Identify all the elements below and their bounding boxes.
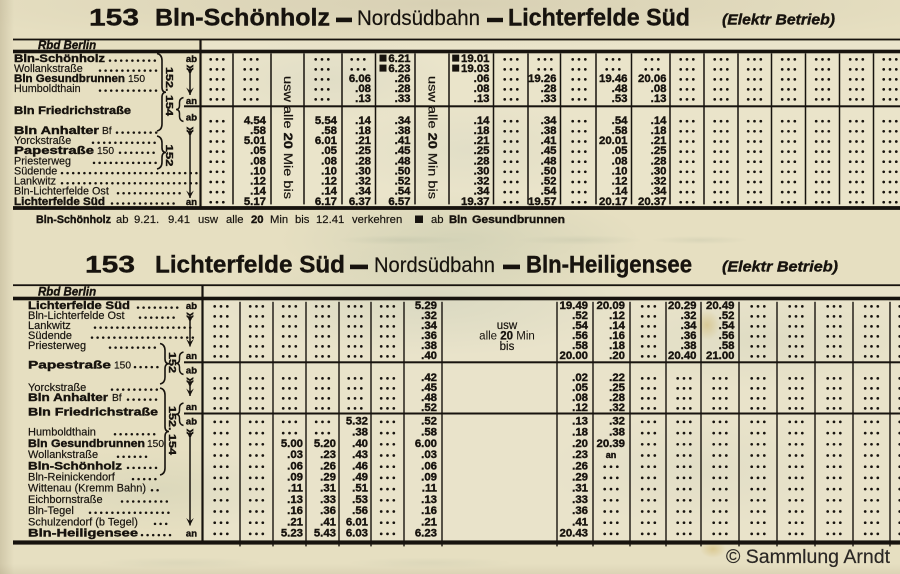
svg-text:.23: .23 <box>572 449 588 461</box>
svg-text:.53: .53 <box>352 494 368 506</box>
svg-text:.16: .16 <box>421 505 437 517</box>
svg-text:6.57: 6.57 <box>388 196 410 208</box>
svg-text:.31: .31 <box>572 483 588 495</box>
svg-text:.38: .38 <box>352 427 368 439</box>
svg-text:5.20: 5.20 <box>314 438 336 450</box>
svg-text:Bln-Reinickendorf: Bln-Reinickendorf <box>28 472 116 484</box>
svg-text:6.03: 6.03 <box>346 528 368 540</box>
svg-text:6.37: 6.37 <box>349 196 371 208</box>
svg-text:5.32: 5.32 <box>346 416 368 428</box>
svg-text:.13: .13 <box>474 93 490 105</box>
svg-text:.51: .51 <box>352 483 368 495</box>
svg-text:.43: .43 <box>352 449 368 461</box>
svg-text:Bln Friedrichstraße: Bln Friedrichstraße <box>14 105 131 117</box>
svg-text:Bln: Bln <box>449 214 467 226</box>
svg-text:.13: .13 <box>421 494 437 506</box>
svg-text:.23: .23 <box>320 449 336 461</box>
svg-text:an: an <box>186 96 197 107</box>
svg-text:Bln-Tegel: Bln-Tegel <box>28 505 74 517</box>
svg-text:.18: .18 <box>572 427 588 439</box>
svg-text:an: an <box>186 402 197 413</box>
svg-text:19.57: 19.57 <box>528 196 557 208</box>
svg-text:an: an <box>186 351 197 362</box>
svg-text:.31: .31 <box>320 483 336 495</box>
svg-text:.32: .32 <box>609 416 625 428</box>
svg-text:5.00: 5.00 <box>281 438 303 450</box>
svg-text:6.00: 6.00 <box>415 438 437 450</box>
svg-text:alle: alle <box>226 214 244 226</box>
svg-text:Priesterweg: Priesterweg <box>28 340 86 352</box>
svg-text:.33: .33 <box>572 494 588 506</box>
svg-text:bis: bis <box>295 214 310 226</box>
svg-text:ab: ab <box>186 113 197 124</box>
svg-text:.49: .49 <box>352 472 368 484</box>
svg-text:.13: .13 <box>572 416 588 428</box>
svg-text:(Elektr Betrieb): (Elektr Betrieb) <box>722 12 835 29</box>
svg-text:Schulzendorf (b Tegel): Schulzendorf (b Tegel) <box>28 516 138 528</box>
svg-text:Nordsüdbahn: Nordsüdbahn <box>357 7 480 30</box>
svg-text:.58: .58 <box>421 427 437 439</box>
svg-text:6.17: 6.17 <box>315 196 337 208</box>
svg-text:150: 150 <box>114 361 131 372</box>
svg-text:.26: .26 <box>572 460 588 472</box>
svg-text:Eichbornstraße: Eichbornstraße <box>28 494 103 506</box>
svg-text:Bln-Schönholz: Bln-Schönholz <box>155 5 330 32</box>
svg-text:bis: bis <box>500 341 515 353</box>
svg-text:6.01: 6.01 <box>346 516 369 528</box>
svg-text:Bln Gesundbrunnen: Bln Gesundbrunnen <box>28 438 145 450</box>
svg-text:usw: usw <box>198 214 219 226</box>
svg-text:.09: .09 <box>287 472 303 484</box>
svg-text:.21: .21 <box>287 516 303 528</box>
svg-text:ab: ab <box>431 214 444 226</box>
svg-text:.29: .29 <box>320 472 336 484</box>
svg-text:.41: .41 <box>572 516 588 528</box>
svg-text:.03: .03 <box>421 449 437 461</box>
svg-text:(Elektr Betrieb): (Elektr Betrieb) <box>722 259 838 276</box>
svg-text:Humboldthain: Humboldthain <box>14 83 81 95</box>
svg-text:.03: .03 <box>287 449 303 461</box>
svg-text:20.43: 20.43 <box>559 528 588 540</box>
svg-text:.41: .41 <box>320 516 336 528</box>
svg-text:.56: .56 <box>352 505 368 517</box>
svg-text:.38: .38 <box>609 427 625 439</box>
svg-text:Wollankstraße: Wollankstraße <box>28 449 98 461</box>
svg-text:usw alle 20 Mie bis: usw alle 20 Mie bis <box>281 76 293 199</box>
svg-text:Papestraße: Papestraße <box>28 360 111 372</box>
svg-text:Bf: Bf <box>102 126 112 137</box>
svg-text:.06: .06 <box>421 460 437 472</box>
svg-text:Gesundbrunnen: Gesundbrunnen <box>472 214 565 226</box>
svg-text:ab: ab <box>186 301 197 312</box>
svg-text:150: 150 <box>128 74 145 85</box>
svg-text:.26: .26 <box>320 460 336 472</box>
svg-text:.13: .13 <box>355 93 371 105</box>
svg-text:ab: ab <box>186 365 197 376</box>
svg-text:Min: Min <box>270 214 288 226</box>
svg-text:6.23: 6.23 <box>415 528 437 540</box>
svg-text:.11: .11 <box>422 483 438 495</box>
svg-text:Lichterfelde Süd: Lichterfelde Süd <box>508 5 690 32</box>
svg-text:Wittenau (Kremm Bahn): Wittenau (Kremm Bahn) <box>28 483 146 495</box>
svg-text:.53: .53 <box>612 93 628 105</box>
svg-text:150: 150 <box>97 146 114 157</box>
svg-text:20.37: 20.37 <box>638 196 667 208</box>
svg-text:.21: .21 <box>421 516 437 528</box>
svg-text:.13: .13 <box>287 494 303 506</box>
svg-text:Lichterfelde Süd: Lichterfelde Süd <box>14 196 105 208</box>
svg-text:ab: ab <box>186 54 197 65</box>
svg-text:Bln-Schönholz: Bln-Schönholz <box>28 460 122 472</box>
svg-text:an: an <box>186 197 197 208</box>
svg-text:19.37: 19.37 <box>461 196 490 208</box>
svg-text:5.23: 5.23 <box>281 528 303 540</box>
svg-text:152. 154: 152. 154 <box>163 67 175 116</box>
svg-text:.33: .33 <box>395 93 411 105</box>
svg-text:20.39: 20.39 <box>596 438 625 450</box>
svg-text:.12: .12 <box>572 402 588 414</box>
svg-text:9.21.: 9.21. <box>134 214 159 226</box>
svg-text:.33: .33 <box>320 494 336 506</box>
svg-text:153: 153 <box>89 5 139 32</box>
svg-text:.36: .36 <box>572 505 588 517</box>
svg-text:153: 153 <box>85 252 135 279</box>
svg-text:Bln Friedrichstraße: Bln Friedrichstraße <box>28 407 158 419</box>
svg-text:Bf: Bf <box>112 393 122 404</box>
svg-text:152. 154: 152. 154 <box>166 406 178 455</box>
svg-text:Bln-Heiligensee: Bln-Heiligensee <box>526 252 692 279</box>
svg-text:an: an <box>186 529 197 540</box>
svg-text:Bln-Heiligensee: Bln-Heiligensee <box>28 528 138 540</box>
svg-text:usw alle 20 Min bis: usw alle 20 Min bis <box>425 76 437 199</box>
svg-text:.33: .33 <box>541 93 557 105</box>
svg-text:152: 152 <box>163 145 175 167</box>
svg-text:.52: .52 <box>421 416 437 428</box>
svg-text:20.17: 20.17 <box>599 196 628 208</box>
svg-text:.40: .40 <box>421 350 437 362</box>
svg-text:.20: .20 <box>572 438 588 450</box>
svg-text:.36: .36 <box>320 505 336 517</box>
svg-text:Bln-Schönholz: Bln-Schönholz <box>36 214 111 226</box>
svg-text:12.41: 12.41 <box>316 214 344 226</box>
svg-text:150: 150 <box>147 439 164 450</box>
svg-text:5.17: 5.17 <box>244 196 266 208</box>
svg-text:.09: .09 <box>421 472 437 484</box>
svg-text:an: an <box>606 450 617 460</box>
svg-text:Bln Anhalter: Bln Anhalter <box>28 392 109 404</box>
svg-text:ab: ab <box>186 416 197 427</box>
svg-text:21.00: 21.00 <box>706 350 735 362</box>
svg-text:Humboldthain: Humboldthain <box>28 427 96 439</box>
svg-text:ab: ab <box>116 214 129 226</box>
svg-text:20.40: 20.40 <box>668 350 697 362</box>
svg-text:.40: .40 <box>352 438 368 450</box>
svg-text:© Sammlung Arndt: © Sammlung Arndt <box>726 546 891 568</box>
svg-text:20: 20 <box>251 214 264 226</box>
svg-text:.52: .52 <box>421 402 437 414</box>
svg-text:5.43: 5.43 <box>314 528 336 540</box>
svg-text:.29: .29 <box>572 472 588 484</box>
svg-text:.46: .46 <box>352 460 368 472</box>
svg-text:.20: .20 <box>609 350 625 362</box>
svg-text:.16: .16 <box>287 505 303 517</box>
svg-text:.11: .11 <box>288 483 304 495</box>
svg-text:.06: .06 <box>287 460 303 472</box>
svg-text:20.00: 20.00 <box>559 350 588 362</box>
svg-text:Nordsüdbahn: Nordsüdbahn <box>374 254 495 277</box>
svg-text:verkehren: verkehren <box>352 214 402 226</box>
svg-text:9.41: 9.41 <box>168 214 190 226</box>
svg-text:.13: .13 <box>651 93 667 105</box>
svg-text:Lichterfelde Süd: Lichterfelde Süd <box>155 252 345 279</box>
svg-text:Rbd Berlin: Rbd Berlin <box>38 286 96 298</box>
svg-text:.32: .32 <box>609 402 625 414</box>
